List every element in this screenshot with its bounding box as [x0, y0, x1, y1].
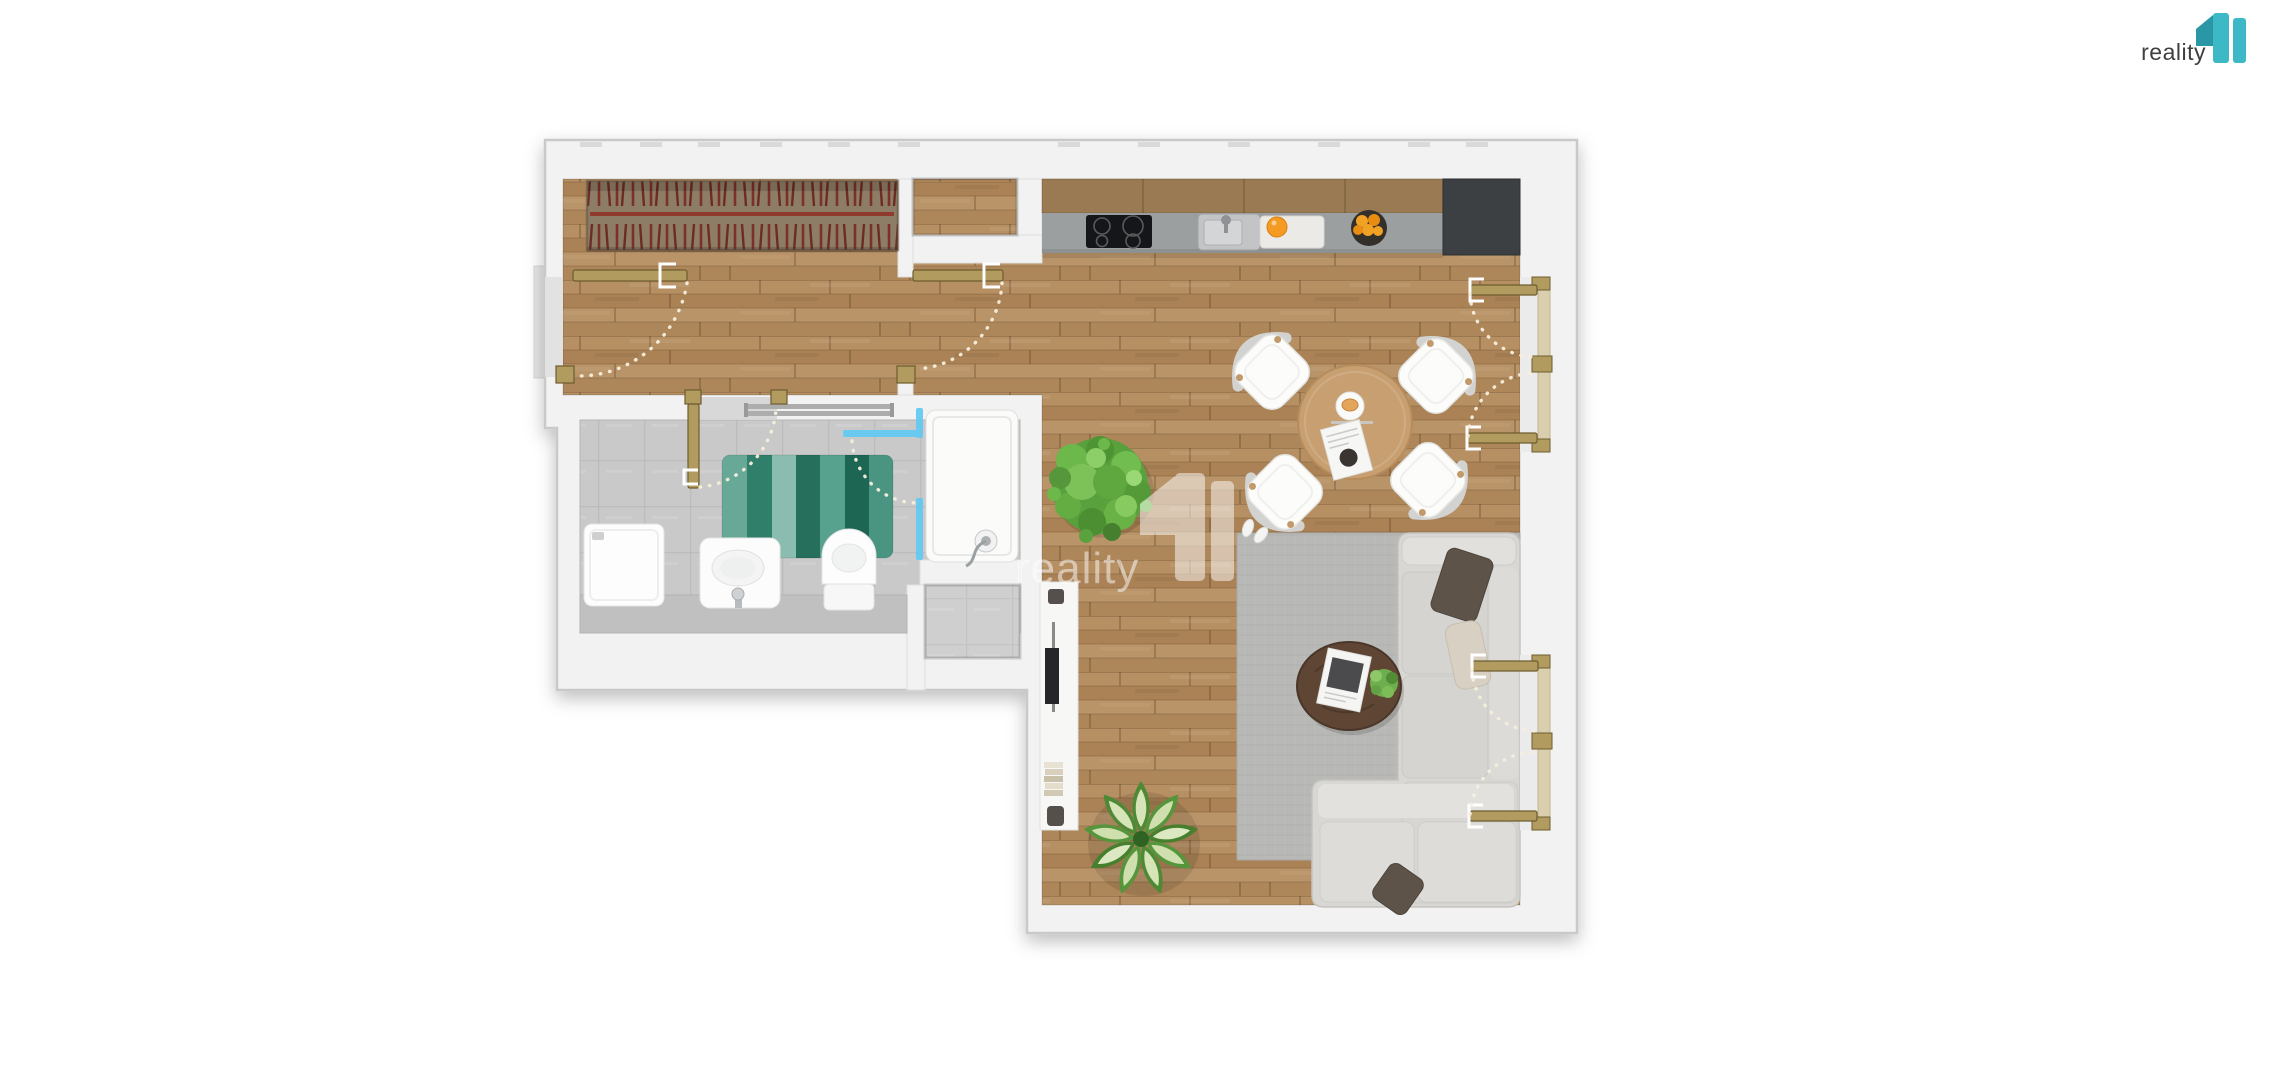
hallway-door-hinge [897, 366, 915, 383]
cutting-board [1260, 216, 1324, 248]
hallway-door-leaf [913, 270, 1003, 281]
toilet [822, 529, 876, 610]
entrance-door-hinge [556, 366, 574, 383]
window-lower-leaf-2 [1470, 811, 1537, 821]
washbasin [700, 538, 780, 608]
book-stack [1044, 762, 1063, 796]
kitchen-cabinets [1042, 179, 1443, 213]
watermark-text: reality [1015, 544, 1139, 593]
french-window-upper [1520, 277, 1552, 452]
bathroom-door-hinge [685, 390, 701, 404]
floor-plan-canvas: reality reality [0, 0, 2270, 1080]
kitchen-sink [1198, 214, 1260, 250]
wardrobe [587, 181, 898, 252]
bathroom-door-leaf [688, 404, 699, 488]
window-upper-leaf-1 [1471, 285, 1537, 295]
window-lower-leaf-1 [1472, 661, 1538, 671]
bathroom-door-hinge-2 [771, 390, 787, 404]
shower [926, 410, 1018, 566]
window-upper-leaf-2 [1468, 433, 1537, 443]
washing-machine [584, 524, 664, 606]
orange [1267, 217, 1287, 237]
decor-object [1047, 806, 1064, 826]
refrigerator [1443, 179, 1520, 255]
tv-console [1040, 582, 1078, 830]
entrance-door-leaf [573, 270, 687, 281]
induction-cooktop [1086, 215, 1152, 248]
french-window-lower [1520, 655, 1552, 830]
tv [1045, 648, 1059, 704]
fruit-bowl [1351, 210, 1387, 246]
logo: reality [2141, 13, 2246, 65]
hanger-rail [590, 212, 894, 216]
floor-plan-page: reality reality [0, 0, 2270, 1080]
entrance-threshold [545, 277, 563, 377]
